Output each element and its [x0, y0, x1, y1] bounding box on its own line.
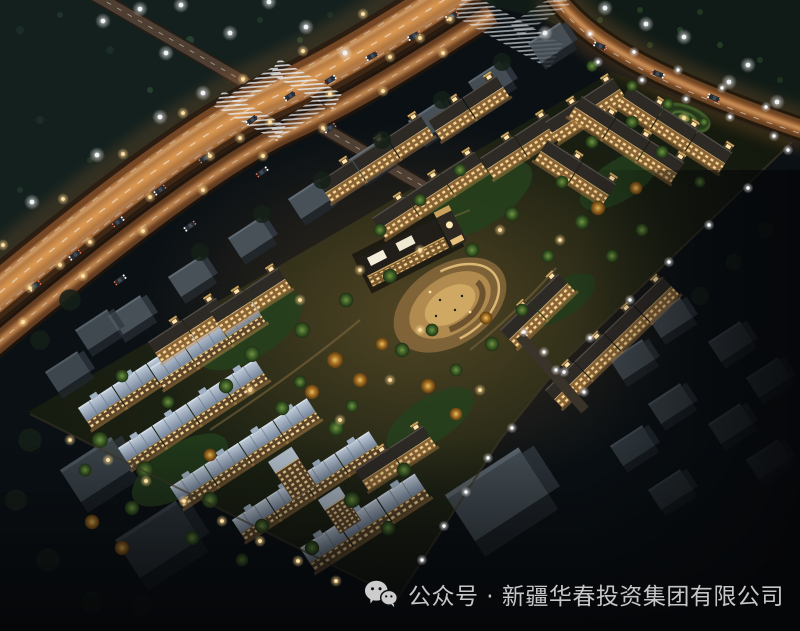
night-aerial-scene: [0, 0, 800, 631]
rendering-image: 公众号 · 新疆华春投资集团有限公司: [0, 0, 800, 631]
wechat-icon: [364, 579, 398, 609]
caption: 公众号 · 新疆华春投资集团有限公司: [364, 577, 784, 611]
right-fade: [580, 170, 800, 631]
caption-text: 公众号 · 新疆华春投资集团有限公司: [408, 577, 784, 611]
